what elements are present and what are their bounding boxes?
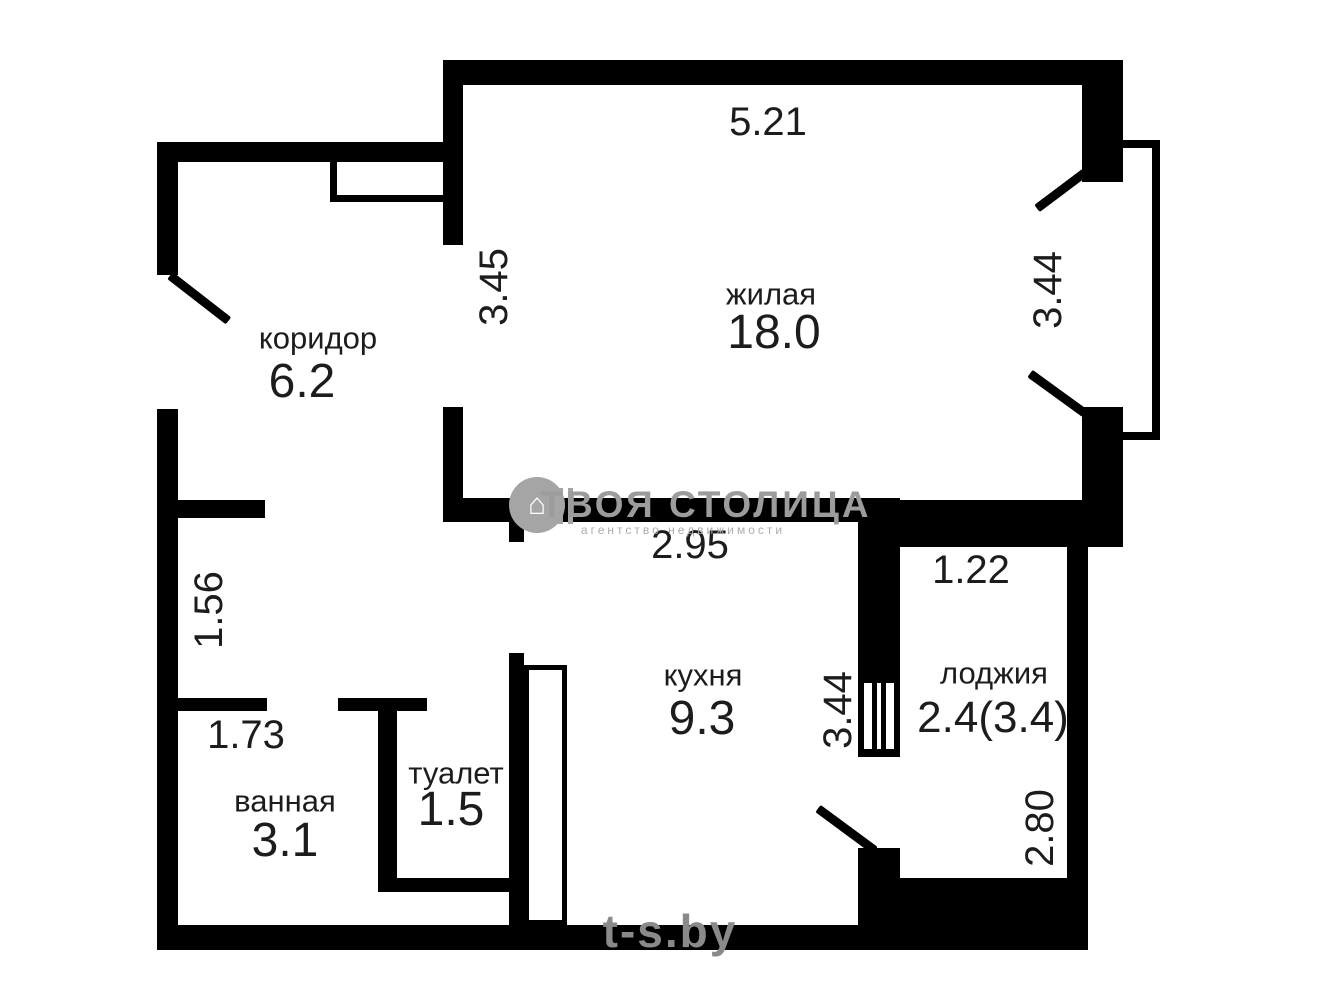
dim-hall-width: 1.56 bbox=[189, 571, 229, 649]
wall-kitchen-loggia-stub bbox=[858, 848, 900, 950]
room-label-corridor: коридор bbox=[259, 323, 377, 354]
balcony-door-swing-upper bbox=[1034, 169, 1087, 212]
room-label-loggia: лоджия bbox=[940, 658, 1048, 689]
room-label-living: жилая bbox=[726, 279, 816, 310]
kitchen-balcony-door-swing bbox=[815, 805, 877, 854]
floor-plan: 5.21 3.45 3.44 жилая 18.0 коридор 6.2 2.… bbox=[0, 0, 1342, 1007]
wall-bath-toilet bbox=[378, 711, 397, 892]
room-area-bathroom: 3.1 bbox=[252, 817, 319, 865]
corridor-niche-inner bbox=[337, 162, 443, 195]
window-mullion bbox=[881, 683, 886, 749]
room-area-corridor: 6.2 bbox=[269, 358, 336, 406]
dim-bathroom-width: 1.73 bbox=[207, 715, 285, 755]
entrance-door-swing bbox=[167, 272, 231, 324]
watermark-site: t-s.by bbox=[603, 904, 738, 958]
loggia-window-block bbox=[858, 677, 900, 757]
dim-loggia-width: 1.22 bbox=[932, 550, 1010, 590]
dim-loggia-height: 2.80 bbox=[1020, 789, 1060, 867]
wall-kitchen-loggia-upper bbox=[858, 522, 900, 677]
room-area-toilet: 1.5 bbox=[418, 786, 485, 834]
dim-kitchen-loggia-opening: 3.44 bbox=[818, 671, 858, 749]
room-area-kitchen: 9.3 bbox=[669, 695, 736, 743]
room-area-living: 18.0 bbox=[727, 309, 820, 357]
wall-hall-stub bbox=[178, 500, 265, 518]
wall-living-top bbox=[443, 60, 1123, 85]
kitchen-door-leaf bbox=[524, 665, 567, 925]
room-label-bathroom: ванная bbox=[234, 786, 336, 817]
wall-bath-top-west bbox=[178, 698, 267, 711]
dim-living-height-left: 3.45 bbox=[474, 248, 514, 326]
window-mullion bbox=[872, 683, 877, 749]
room-label-kitchen: кухня bbox=[664, 660, 743, 691]
wall-bath-top-east bbox=[338, 698, 427, 711]
wall-loggia-bottom bbox=[900, 878, 1088, 950]
balcony-rail bbox=[1098, 140, 1160, 440]
watermark-tagline: агентство недвижимости bbox=[581, 523, 785, 537]
dim-living-width: 5.21 bbox=[729, 102, 807, 142]
wall-outer-west-upper bbox=[157, 142, 178, 275]
wall-toilet-bottom bbox=[388, 878, 513, 892]
watermark-brand: ТВОЯ СТОЛИЦА bbox=[540, 484, 871, 526]
room-area-loggia: 2.4(3.4) bbox=[917, 696, 1069, 740]
dim-living-height-right: 3.44 bbox=[1028, 251, 1068, 329]
balcony-door-swing-lower bbox=[1027, 370, 1087, 417]
wall-outer-west-lower bbox=[157, 409, 178, 950]
